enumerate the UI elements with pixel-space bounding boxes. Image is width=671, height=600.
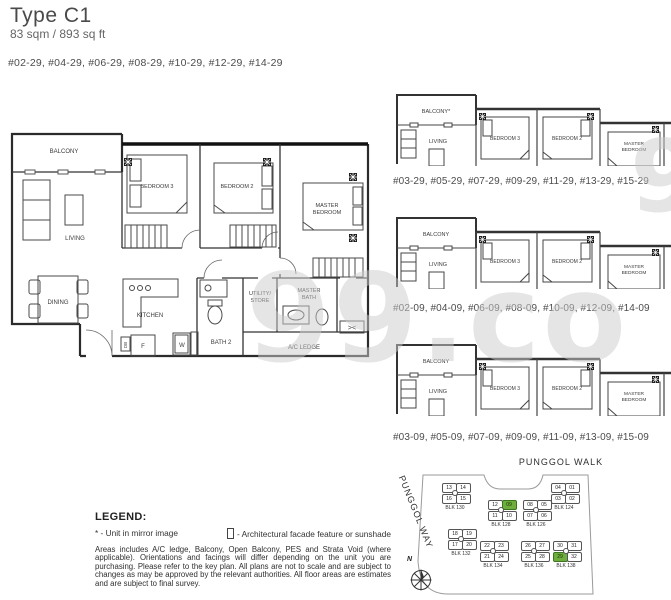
mini-label-master-1: MASTER xyxy=(624,141,645,147)
mini-label-bedroom2: BEDROOM 2 xyxy=(552,136,582,142)
room-label-mbath-1: MASTER xyxy=(298,288,321,294)
room-label-ac-ledge: A/C LEDGE xyxy=(288,345,320,351)
mini-label-master-2: BEDROOM xyxy=(622,397,647,403)
mini-plan-1: BALCONY* LIVING BEDROOM 3 BEDROOM 2 MAST… xyxy=(392,92,671,166)
site-plan: PUNGGOL WALK PUNGGOL WAY N 13 14 16 15 B… xyxy=(400,455,671,600)
legend-disclaimer: Areas includes A/C ledge, Balcony, Open … xyxy=(95,546,391,588)
mini-unit-list-2: #02-09, #04-09, #06-09, #08-09, #10-09, … xyxy=(393,303,650,314)
mini-label-living: LIVING xyxy=(429,139,447,145)
furniture xyxy=(23,155,364,356)
room-label-bedroom3: BEDROOM 3 xyxy=(140,184,173,190)
block-label: BLK 130 xyxy=(440,505,470,511)
legend: LEGEND: * - Unit in mirror image - Archi… xyxy=(95,511,391,588)
unit-cell: 06 xyxy=(537,511,552,521)
appliance-label-washer: W xyxy=(179,343,185,349)
mini-label-balcony: BALCONY xyxy=(423,232,450,238)
block-label: BLK 136 xyxy=(519,563,549,569)
unit-cell: 27 xyxy=(535,541,550,551)
unit-cell: 26 xyxy=(521,541,536,551)
site-block-130: 13 14 16 15 BLK 130 xyxy=(440,483,470,511)
louver-symbol: >< xyxy=(348,325,356,332)
mini-label-master-1: MASTER xyxy=(624,264,645,270)
unit-cell: 11 xyxy=(488,511,503,521)
unit-cell: 23 xyxy=(494,541,509,551)
appliance-label-fridge: F xyxy=(141,344,145,350)
mini-unit-list-3: #03-09, #05-09, #07-09, #09-09, #11-09, … xyxy=(393,432,649,443)
room-label-bedroom2: BEDROOM 2 xyxy=(220,184,253,190)
unit-cell: 18 xyxy=(448,529,463,539)
mini-label-bedroom2: BEDROOM 2 xyxy=(552,386,582,392)
mini-plan-2: BALCONY LIVING BEDROOM 3 BEDROOM 2 MASTE… xyxy=(392,215,671,289)
site-block-128: 12 09 11 10 BLK 128 xyxy=(486,500,516,528)
mini-label-bedroom3: BEDROOM 3 xyxy=(490,259,520,265)
legend-facade-item: - Architectural facade feature or sunsha… xyxy=(237,529,391,539)
unit-cell-highlighted: 09 xyxy=(502,500,517,510)
mini-plan-3: BALCONY LIVING BEDROOM 3 BEDROOM 2 MASTE… xyxy=(392,342,671,416)
unit-cell: 17 xyxy=(448,540,463,550)
unit-cell: 31 xyxy=(567,541,582,551)
unit-cell: 04 xyxy=(551,483,566,493)
mini-label-master-2: BEDROOM xyxy=(622,270,647,276)
room-label-master-1: MASTER xyxy=(316,203,339,209)
site-block-132: 18 19 17 20 BLK 132 xyxy=(446,529,476,557)
unit-cell: 21 xyxy=(480,552,495,562)
block-label: BLK 124 xyxy=(549,505,579,511)
unit-cell: 02 xyxy=(565,494,580,504)
mini-unit-list-1: #03-29, #05-29, #07-29, #09-29, #11-29, … xyxy=(393,176,649,187)
db-label: DB xyxy=(123,342,128,348)
block-label: BLK 132 xyxy=(446,551,476,557)
unit-cell: 32 xyxy=(567,552,582,562)
unit-cell: 12 xyxy=(488,500,503,510)
mini-label-master-2: BEDROOM xyxy=(622,147,647,153)
unit-cell: 15 xyxy=(456,494,471,504)
room-label-utility-2: STORE xyxy=(251,298,270,304)
room-label-kitchen: KITCHEN xyxy=(137,313,163,319)
unit-cell: 19 xyxy=(462,529,477,539)
unit-cell-highlighted: 29 xyxy=(553,552,568,562)
room-label-balcony: BALCONY xyxy=(50,149,79,155)
legend-mirror-item: * - Unit in mirror image xyxy=(95,528,178,539)
room-label-dining: DINING xyxy=(48,300,69,306)
unit-cell: 24 xyxy=(494,552,509,562)
mini-label-balcony: BALCONY xyxy=(423,359,450,365)
floorplan-page: Type C1 83 sqm / 893 sq ft #02-29, #04-2… xyxy=(0,0,671,600)
mini-label-living: LIVING xyxy=(429,262,447,268)
unit-cell: 25 xyxy=(521,552,536,562)
block-label: BLK 134 xyxy=(478,563,508,569)
unit-cell: 30 xyxy=(553,541,568,551)
room-label-bath2: BATH 2 xyxy=(211,340,232,346)
main-unit-list: #02-29, #04-29, #06-29, #08-29, #10-29, … xyxy=(8,57,283,69)
site-block-134: 22 23 21 24 BLK 134 xyxy=(478,541,508,569)
road-label-punggol-walk: PUNGGOL WALK xyxy=(496,457,626,467)
mini-label-bedroom3: BEDROOM 3 xyxy=(490,136,520,142)
block-label: BLK 138 xyxy=(551,563,581,569)
unit-cell: 16 xyxy=(442,494,457,504)
mini-label-master-1: MASTER xyxy=(624,391,645,397)
site-block-126: 08 05 07 06 BLK 126 xyxy=(521,500,551,528)
site-block-138: 30 31 29 32 BLK 138 xyxy=(551,541,581,569)
mini-label-bedroom3: BEDROOM 3 xyxy=(490,386,520,392)
site-block-136: 26 27 25 28 BLK 136 xyxy=(519,541,549,569)
room-label-utility-1: UTILITY/ xyxy=(249,291,271,297)
room-label-master-2: BEDROOM xyxy=(313,210,342,216)
room-label-mbath-2: BATH xyxy=(302,295,316,301)
unit-cell: 28 xyxy=(535,552,550,562)
mini-label-living: LIVING xyxy=(429,389,447,395)
unit-cell: 10 xyxy=(502,511,517,521)
block-label: BLK 126 xyxy=(521,522,551,528)
facade-feature-icon xyxy=(124,158,357,242)
legend-heading: LEGEND: xyxy=(95,511,391,523)
page-title: Type C1 xyxy=(10,4,92,28)
unit-cell: 13 xyxy=(442,483,457,493)
unit-area: 83 sqm / 893 sq ft xyxy=(10,27,105,41)
unit-cell: 14 xyxy=(456,483,471,493)
block-label: BLK 128 xyxy=(486,522,516,528)
unit-cell: 01 xyxy=(565,483,580,493)
unit-cell: 08 xyxy=(523,500,538,510)
site-block-124: 04 01 03 02 BLK 124 xyxy=(549,483,579,511)
unit-cell: 20 xyxy=(462,540,477,550)
mini-label-balcony: BALCONY* xyxy=(422,109,451,115)
facade-feature-icon xyxy=(227,528,234,539)
unit-cell: 22 xyxy=(480,541,495,551)
room-label-living: LIVING xyxy=(65,236,85,242)
main-floor-plan: BALCONY LIVING BEDROOM 3 BEDROOM 2 MASTE… xyxy=(0,128,390,373)
unit-cell: 03 xyxy=(551,494,566,504)
unit-cell: 07 xyxy=(523,511,538,521)
mini-label-bedroom2: BEDROOM 2 xyxy=(552,259,582,265)
north-label: N xyxy=(407,556,412,563)
